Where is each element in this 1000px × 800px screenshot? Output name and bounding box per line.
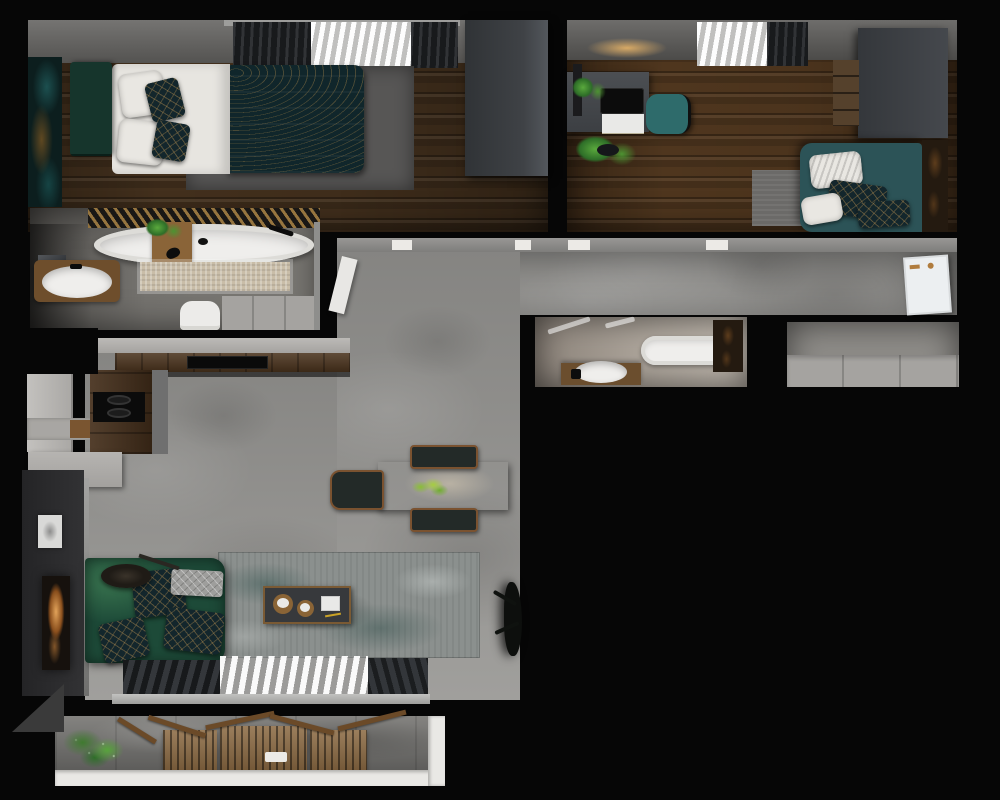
drawer-unit: [602, 114, 644, 134]
entrance-door: [903, 255, 952, 316]
door-soffit: [706, 240, 728, 250]
dining-chair: [410, 508, 478, 532]
kitchen-upper-cabinets: [96, 338, 350, 353]
room-bathroom-large: [30, 208, 320, 330]
dark-wood-shelf: [713, 320, 743, 372]
counter-side-panel: [152, 370, 168, 454]
runner-rug: [140, 262, 290, 291]
apartment-floor-plan: [0, 0, 1000, 800]
plant-pot: [597, 144, 619, 156]
bed-mattress: [112, 64, 230, 174]
interior-wall-top-band: [337, 238, 957, 252]
room-bedroom-1: [28, 20, 548, 232]
wardrobe: [858, 28, 948, 138]
wall-face: [314, 222, 320, 330]
patterned-pillow: [163, 607, 226, 656]
room-bathroom-small: [535, 317, 747, 387]
induction-hob: [187, 356, 268, 369]
burner: [107, 395, 131, 405]
dining-chair: [410, 445, 478, 469]
toilet: [180, 301, 220, 330]
table-plant-centerpiece: [408, 476, 450, 498]
wardrobe: [465, 20, 548, 176]
patterned-pillow: [151, 119, 191, 162]
fireplace: [42, 576, 70, 670]
cooktop: [93, 392, 145, 422]
sink-faucet: [70, 264, 82, 269]
bed-headboard: [70, 62, 112, 156]
patterned-pillow: [144, 76, 187, 123]
plate: [277, 598, 289, 608]
door-hinge: [910, 265, 920, 270]
patterned-pillow: [857, 199, 911, 229]
light-streak: [547, 316, 590, 334]
balcony-railing-bottom: [55, 770, 445, 786]
sheer-curtain: [311, 22, 411, 68]
round-sink: [42, 266, 112, 298]
teal-wall-art: [28, 57, 62, 207]
light-streak: [605, 316, 635, 328]
dark-wood-panel: [922, 140, 948, 232]
dining-chair: [330, 470, 384, 510]
bathtub-drain: [198, 238, 208, 245]
book: [321, 596, 340, 611]
white-pot: [265, 752, 287, 762]
dark-curtain: [411, 22, 458, 68]
small-rug: [752, 170, 806, 226]
round-sink: [575, 361, 627, 383]
sheer-curtain: [697, 22, 767, 66]
balcony: [55, 716, 445, 774]
room-bedroom-2: [567, 20, 957, 232]
wood-drawer-cabinet: [833, 60, 859, 126]
room-storage: [787, 322, 959, 387]
gray-cushion: [170, 569, 223, 598]
floor-lamp-shade: [101, 564, 151, 588]
sink-faucet: [571, 369, 581, 379]
patterned-pillow: [97, 616, 150, 665]
desk-chair: [646, 94, 691, 134]
fridge: [27, 372, 73, 452]
hallway-floor: [520, 252, 957, 315]
wardrobe-cabinets: [787, 355, 959, 387]
daybed-sofa: [800, 143, 922, 232]
door-handle: [927, 263, 933, 269]
dark-curtain: [233, 22, 311, 68]
chair-frame-bar: [337, 710, 406, 732]
sheer-curtain: [220, 656, 368, 698]
desk-lamp-glow: [587, 38, 667, 58]
white-pillow: [800, 192, 844, 227]
door-soffit: [515, 240, 531, 250]
dark-curtain: [368, 658, 428, 697]
dark-curtain: [123, 660, 220, 697]
cutting-board: [70, 420, 90, 438]
desk-plant: [569, 74, 609, 104]
bed-duvet: [226, 65, 364, 173]
wall-segment: [18, 328, 98, 374]
stool-plant: [142, 216, 186, 242]
wall-picture: [38, 515, 62, 548]
door-soffit: [392, 240, 412, 250]
bathroom-cabinet: [222, 296, 318, 330]
balcony-railing-right: [428, 716, 445, 786]
door-soffit: [568, 240, 590, 250]
pen: [325, 613, 341, 618]
dark-curtain: [767, 22, 808, 66]
burner: [107, 408, 131, 418]
door-light-glow: [905, 322, 959, 340]
window-sill: [112, 694, 430, 704]
plate: [300, 603, 310, 612]
coffee-table: [263, 586, 351, 624]
wood-slat-furniture: [220, 726, 307, 776]
